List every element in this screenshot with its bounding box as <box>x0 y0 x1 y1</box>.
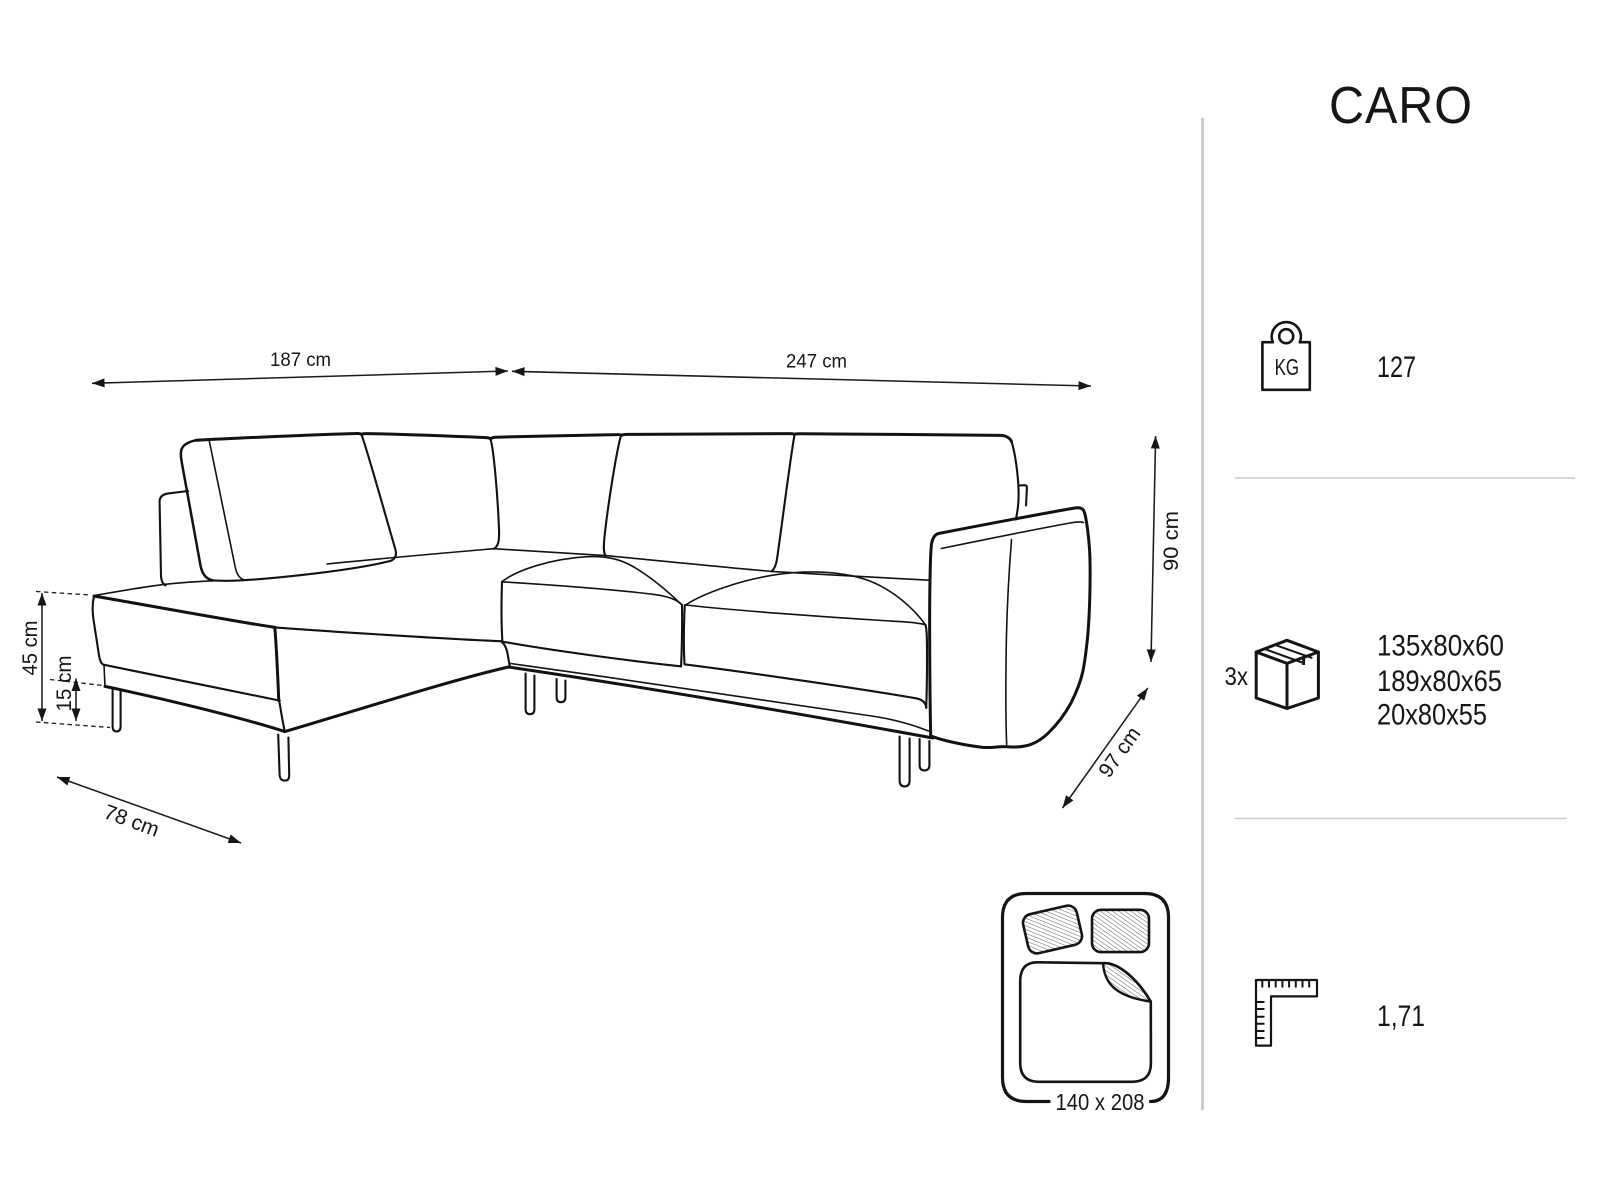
svg-text:45 cm: 45 cm <box>19 621 42 676</box>
svg-text:189x80x65: 189x80x65 <box>1377 665 1502 698</box>
svg-text:15 cm: 15 cm <box>53 656 76 712</box>
svg-text:CARO: CARO <box>1329 77 1473 135</box>
svg-text:247 cm: 247 cm <box>786 352 847 373</box>
svg-text:140 x 208: 140 x 208 <box>1056 1089 1145 1115</box>
svg-text:3x: 3x <box>1225 663 1249 691</box>
svg-text:90 cm: 90 cm <box>1160 511 1183 571</box>
svg-text:20x80x55: 20x80x55 <box>1377 699 1487 732</box>
svg-text:135x80x60: 135x80x60 <box>1377 630 1504 663</box>
svg-text:KG: KG <box>1275 354 1300 380</box>
svg-text:1,71: 1,71 <box>1377 1000 1425 1033</box>
svg-text:127: 127 <box>1377 351 1416 384</box>
svg-text:187 cm: 187 cm <box>270 350 331 371</box>
